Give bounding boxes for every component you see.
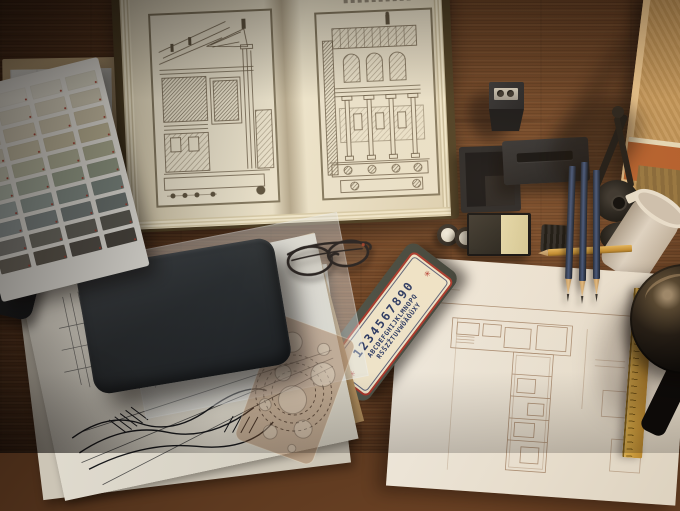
notepad-case-lid bbox=[469, 215, 501, 254]
open-book bbox=[111, 0, 459, 233]
pencil-body bbox=[593, 170, 600, 279]
drafting-pencil bbox=[593, 170, 600, 302]
pencil-wood-tip bbox=[579, 281, 586, 297]
paint-chip bbox=[0, 253, 32, 274]
pencil-lead bbox=[566, 294, 569, 302]
paint-chip bbox=[104, 227, 138, 248]
engraving-right-plate bbox=[314, 7, 440, 200]
notepad-case bbox=[467, 213, 531, 256]
engraving-building-section bbox=[149, 10, 279, 207]
sharpener-hole bbox=[507, 90, 514, 97]
pencil-wood-tip bbox=[565, 279, 573, 295]
notepad-paper bbox=[501, 215, 528, 254]
paint-chip bbox=[33, 245, 67, 266]
paint-chip bbox=[69, 236, 103, 257]
engraving-left-plate bbox=[148, 8, 280, 207]
pencil-wood-tip bbox=[593, 279, 600, 295]
pencil-lead bbox=[581, 296, 584, 304]
eyeglasses bbox=[274, 229, 379, 285]
sharpener-front-face bbox=[489, 109, 524, 131]
bottle-cap bbox=[441, 228, 455, 242]
sharpener-plate bbox=[494, 88, 518, 100]
engraving-colonnade-section bbox=[315, 9, 439, 200]
pencil-lead bbox=[595, 294, 598, 302]
sharpener-hole bbox=[497, 90, 504, 97]
divider-compass-hinge bbox=[612, 106, 624, 118]
